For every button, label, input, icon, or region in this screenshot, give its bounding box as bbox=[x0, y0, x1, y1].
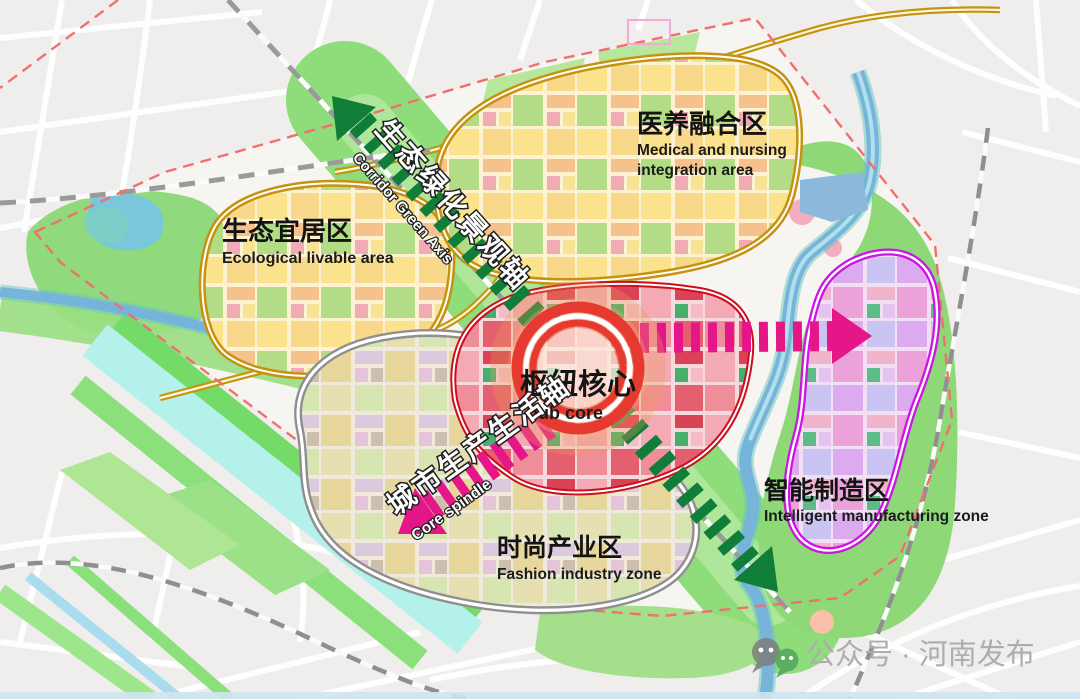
planning-map-svg: 生态宜居区 Ecological livable area 医养融合区 Medi… bbox=[0, 0, 1080, 699]
zone-intelligent-label-zh: 智能制造区 bbox=[764, 476, 889, 505]
bottom-water-strip bbox=[0, 692, 1080, 699]
zone-medical-label-zh: 医养融合区 bbox=[637, 109, 767, 139]
zone-fashion-label-en: Fashion industry zone bbox=[497, 566, 662, 583]
zone-medical-label-en2: integration area bbox=[637, 162, 754, 179]
planning-map: 生态宜居区 Ecological livable area 医养融合区 Medi… bbox=[0, 0, 1080, 699]
zone-ecological-label-en: Ecological livable area bbox=[222, 250, 394, 267]
zone-intelligent-label-en: Intelligent manufacturing zone bbox=[764, 508, 989, 525]
zone-ecological-label-zh: 生态宜居区 bbox=[222, 216, 352, 246]
zone-medical-label-en1: Medical and nursing bbox=[637, 142, 787, 159]
zone-fashion-label-zh: 时尚产业区 bbox=[497, 534, 622, 562]
watermark-text: 公众号 · 河南发布 bbox=[806, 638, 1035, 671]
